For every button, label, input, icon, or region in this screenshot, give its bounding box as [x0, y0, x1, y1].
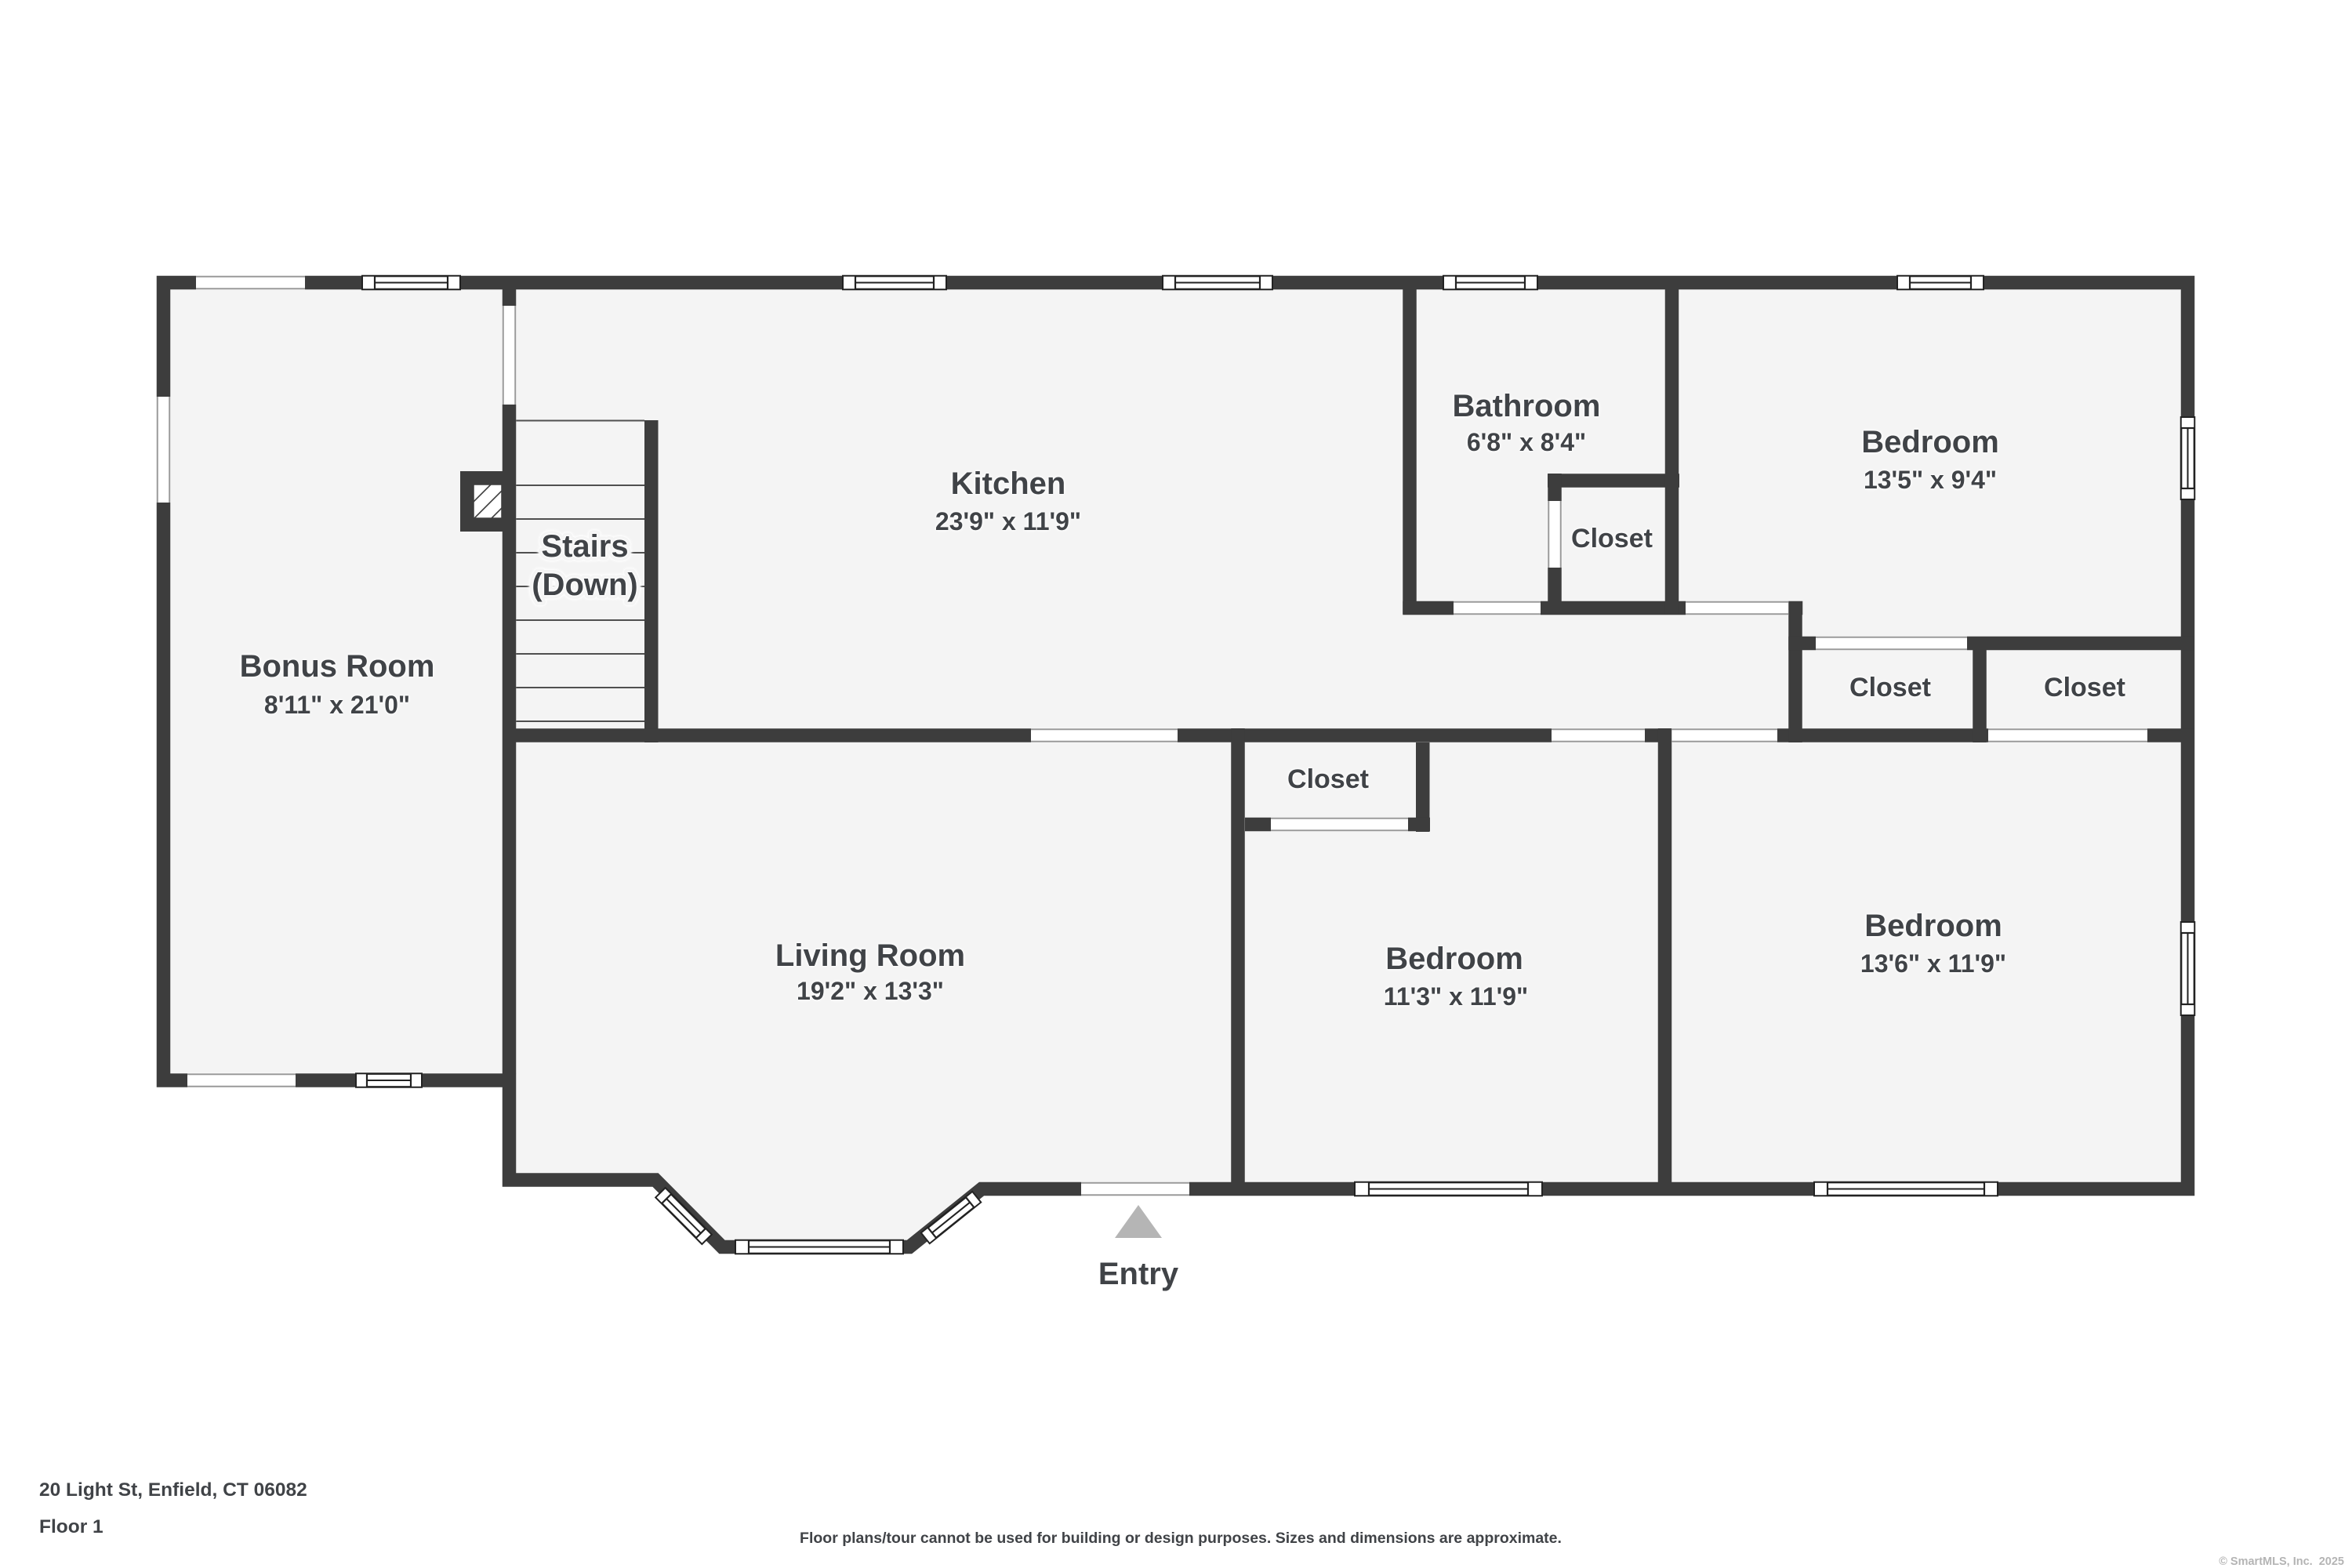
svg-text:Closet: Closet	[1571, 524, 1653, 554]
svg-text:Closet: Closet	[2044, 673, 2125, 702]
svg-text:Stairs: Stairs	[541, 529, 628, 564]
svg-text:13'5" x 9'4": 13'5" x 9'4"	[1864, 466, 1997, 494]
svg-text:Bedroom: Bedroom	[1864, 909, 2002, 943]
svg-text:Living Room: Living Room	[775, 938, 965, 973]
svg-text:Closet: Closet	[1849, 673, 1931, 702]
svg-text:6'8" x 8'4": 6'8" x 8'4"	[1467, 428, 1586, 456]
svg-text:Bonus Room: Bonus Room	[240, 649, 435, 684]
svg-text:Closet: Closet	[1287, 764, 1369, 794]
svg-text:Entry: Entry	[1098, 1257, 1179, 1291]
svg-text:13'6" x 11'9": 13'6" x 11'9"	[1860, 949, 2006, 978]
svg-text:Bedroom: Bedroom	[1861, 425, 1999, 459]
svg-text:23'9" x 11'9": 23'9" x 11'9"	[935, 507, 1081, 535]
svg-text:Bathroom: Bathroom	[1453, 389, 1601, 423]
svg-text:Kitchen: Kitchen	[951, 466, 1066, 501]
svg-text:© SmartMLS, Inc. 2025: © SmartMLS, Inc. 2025	[2219, 1555, 2344, 1568]
svg-text:Bedroom: Bedroom	[1385, 942, 1523, 976]
svg-text:(Down): (Down)	[532, 568, 638, 602]
svg-text:11'3" x 11'9": 11'3" x 11'9"	[1384, 982, 1528, 1011]
svg-text:20 Light St, Enfield, CT 06082: 20 Light St, Enfield, CT 06082	[39, 1479, 307, 1501]
svg-text:Floor plans/tour cannot be use: Floor plans/tour cannot be used for buil…	[800, 1530, 1562, 1547]
svg-text:19'2" x 13'3": 19'2" x 13'3"	[797, 977, 944, 1005]
svg-text:8'11" x 21'0": 8'11" x 21'0"	[264, 691, 410, 719]
svg-text:Floor 1: Floor 1	[39, 1516, 103, 1537]
